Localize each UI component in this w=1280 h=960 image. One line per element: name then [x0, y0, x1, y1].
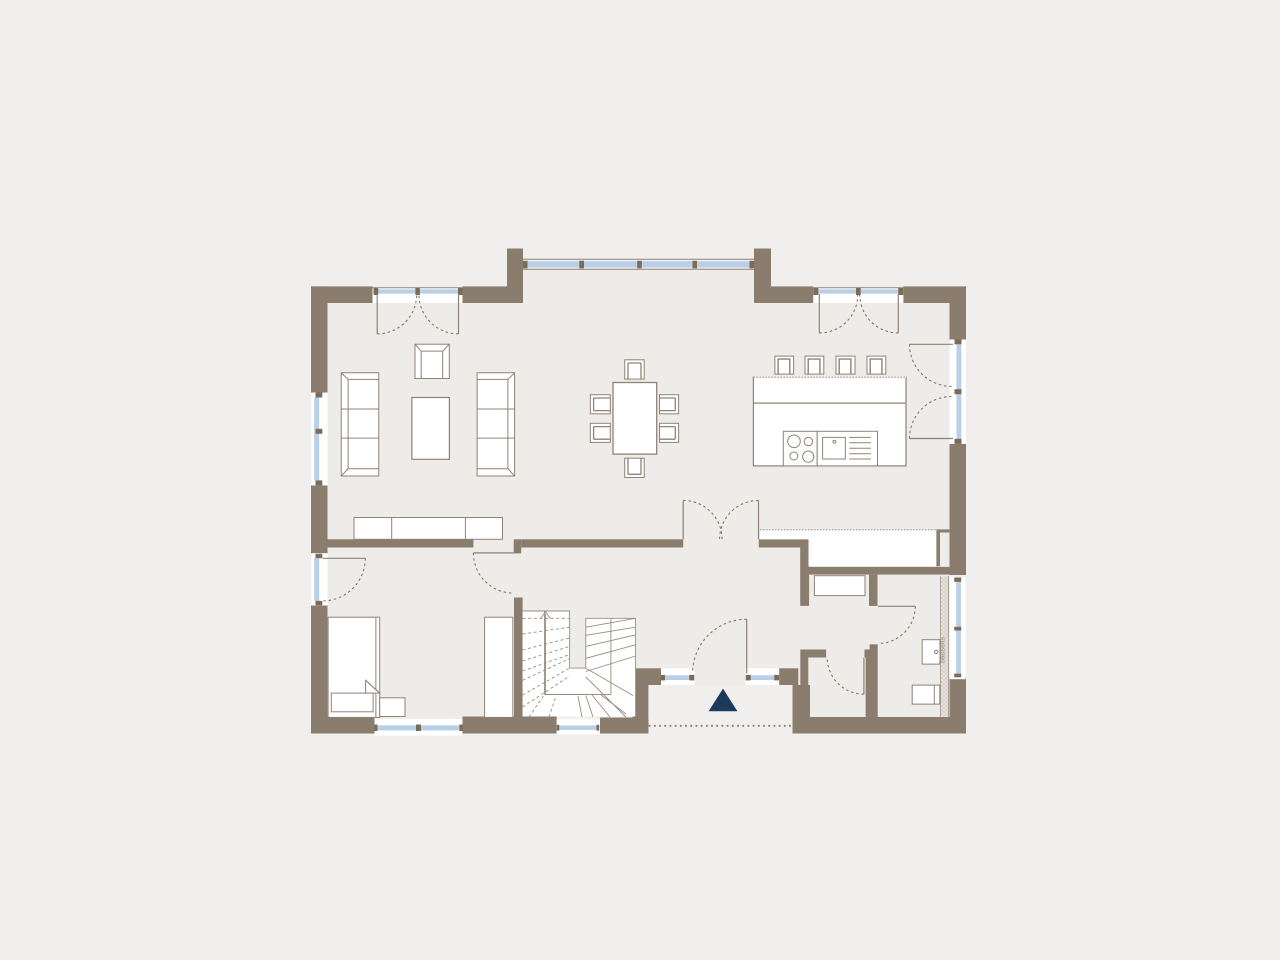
svg-text:bauseits: bauseits [940, 636, 947, 663]
